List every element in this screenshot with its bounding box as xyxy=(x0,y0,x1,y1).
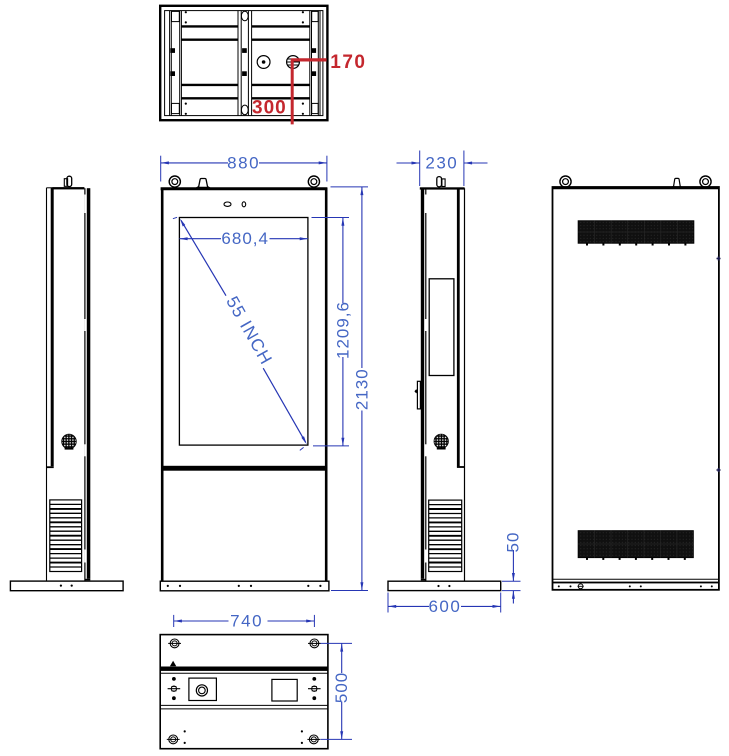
svg-text:740: 740 xyxy=(230,611,263,630)
svg-text:230: 230 xyxy=(425,153,458,172)
svg-text:680,4: 680,4 xyxy=(221,229,269,248)
svg-text:300: 300 xyxy=(252,98,287,119)
svg-text:1209,6: 1209,6 xyxy=(333,301,352,359)
svg-text:600: 600 xyxy=(428,597,461,616)
svg-text:880: 880 xyxy=(227,153,260,172)
svg-text:50: 50 xyxy=(504,532,523,553)
svg-text:170: 170 xyxy=(330,52,366,73)
svg-text:500: 500 xyxy=(332,672,351,703)
svg-text:2130: 2130 xyxy=(352,368,371,410)
